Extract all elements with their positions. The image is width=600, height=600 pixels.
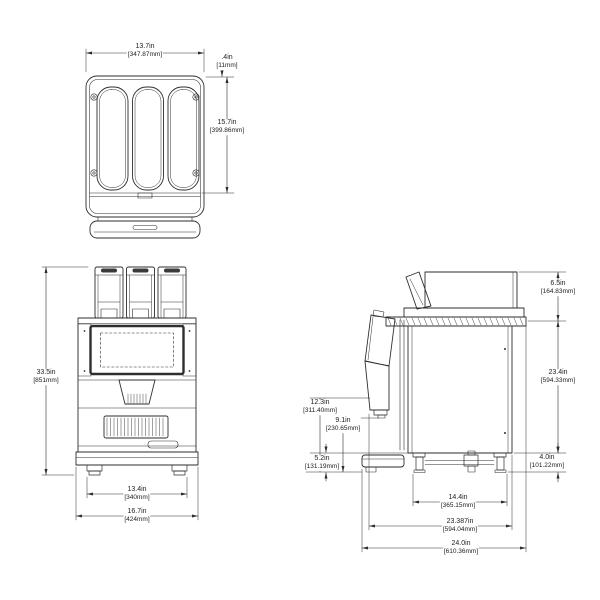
dim-inches: 6.5in xyxy=(541,280,575,288)
dim-label-side-overall-depth: 24.0in [610.36mm] xyxy=(443,540,479,556)
dim-inches: 23.387in xyxy=(443,518,477,526)
dim-label-side-body-height: 23.4in [594.33mm] xyxy=(540,369,576,385)
dim-mm: [347.87mm] xyxy=(128,51,162,58)
side-cabinet xyxy=(408,326,512,453)
dim-label-top-lip: .4in [11mm] xyxy=(215,54,238,70)
dim-inches: 13.4in xyxy=(124,486,149,494)
dispense-area xyxy=(78,380,196,408)
dim-label-front-height: 33.5in [851mm] xyxy=(32,369,59,385)
touchscreen xyxy=(91,326,184,374)
corner-fasteners xyxy=(91,94,199,176)
dim-label-top-width: 13.7in [347.87mm] xyxy=(127,43,163,59)
drawing-page: { "drawing_colors": { "line": "#2e2e2e",… xyxy=(0,0,600,600)
dim-mm: [131.19mm] xyxy=(305,463,339,470)
dim-inches: 9.1in xyxy=(326,417,360,425)
dim-mm: [11mm] xyxy=(216,62,237,69)
dim-mm: [365.15mm] xyxy=(441,502,475,509)
dim-label-front-width: 16.7in [424mm] xyxy=(123,508,150,524)
front-cabinet xyxy=(78,318,196,452)
dim-label-side-base-height: 5.2in [131.19mm] xyxy=(304,455,340,471)
front-view xyxy=(76,267,198,475)
dim-inches: 12.3in xyxy=(303,399,337,407)
side-countertop xyxy=(386,317,526,326)
technical-drawing: 13.7in [347.87mm] .4in [11mm] 15.7in [39… xyxy=(0,0,600,600)
top-view xyxy=(86,76,204,238)
dim-inches: .4in xyxy=(216,54,237,62)
dim-inches: 5.2in xyxy=(305,455,339,463)
side-front-panel xyxy=(365,310,404,450)
dim-label-front-feet-span: 13.4in [340mm] xyxy=(123,486,150,502)
dim-label-side-cup-clearance: 9.1in [230.65mm] xyxy=(325,417,361,433)
dim-label-side-hopper-height: 6.5in [164.83mm] xyxy=(540,280,576,296)
dim-mm: [399.86mm] xyxy=(210,127,244,134)
dim-mm: [101.22mm] xyxy=(530,462,564,469)
dim-inches: 16.7in xyxy=(124,508,149,516)
dim-label-side-dispense-height: 12.3in [311.40mm] xyxy=(302,399,338,415)
dim-label-side-body-depth: 23.387in [594.04mm] xyxy=(442,518,478,534)
dim-label-side-leg-height: 4.0in [101.22mm] xyxy=(529,454,565,470)
top-front-tray xyxy=(90,193,201,238)
dim-mm: [594.33mm] xyxy=(541,377,575,384)
dimension-lines xyxy=(42,49,566,552)
dim-mm: [424mm] xyxy=(124,516,149,523)
dim-inches: 23.4in xyxy=(541,369,575,377)
side-view xyxy=(362,272,526,473)
dim-mm: [311.40mm] xyxy=(303,407,337,414)
side-tray-front xyxy=(362,455,404,472)
dim-mm: [230.65mm] xyxy=(326,425,360,432)
front-base xyxy=(76,446,198,475)
dim-mm: [594.04mm] xyxy=(443,526,477,533)
dim-label-side-leg-span: 14.4in [365.15mm] xyxy=(440,494,476,510)
side-hopper xyxy=(404,272,524,317)
dim-label-top-depth: 15.7in [399.86mm] xyxy=(209,119,245,135)
dim-mm: [340mm] xyxy=(124,494,149,501)
side-legs-plumbing xyxy=(413,451,506,473)
dim-inches: 13.7in xyxy=(128,43,162,51)
dim-inches: 24.0in xyxy=(444,540,478,548)
dim-mm: [164.83mm] xyxy=(541,288,575,295)
dim-inches: 33.5in xyxy=(33,369,58,377)
drip-tray xyxy=(104,416,178,448)
hoppers xyxy=(95,267,186,318)
dim-inches: 15.7in xyxy=(210,119,244,127)
drawing-canvas xyxy=(0,0,600,600)
dim-inches: 14.4in xyxy=(441,494,475,502)
dim-mm: [610.36mm] xyxy=(444,548,478,555)
dim-inches: 4.0in xyxy=(530,454,564,462)
hopper-slots xyxy=(97,87,199,190)
dim-mm: [851mm] xyxy=(33,377,58,384)
